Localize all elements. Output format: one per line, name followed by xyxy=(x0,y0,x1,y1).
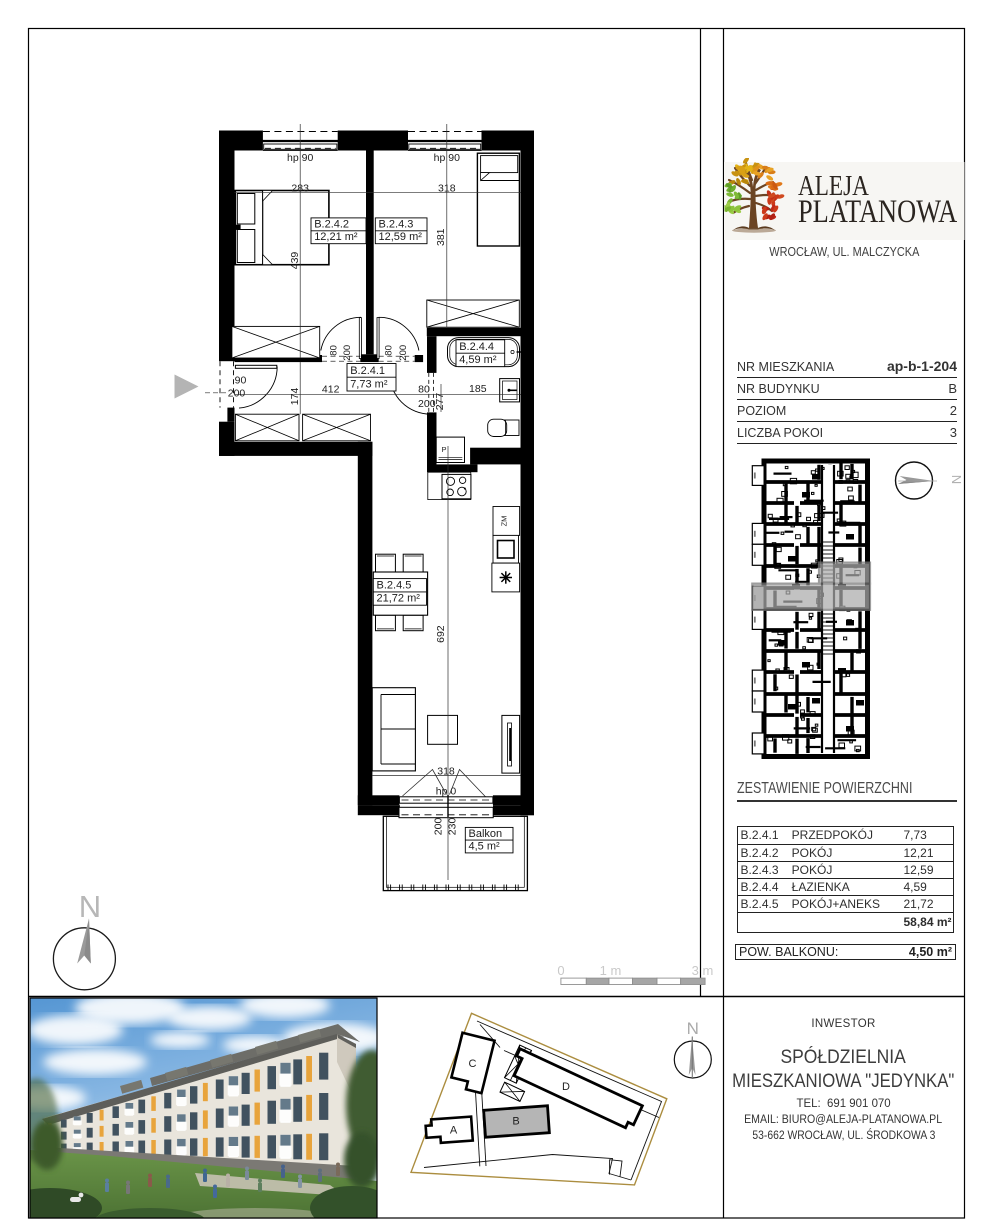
svg-text:3 m: 3 m xyxy=(692,963,714,978)
svg-text:200: 200 xyxy=(342,345,353,361)
svg-text:692: 692 xyxy=(435,625,447,643)
svg-text:230: 230 xyxy=(447,818,459,836)
svg-text:C: C xyxy=(469,1058,477,1070)
svg-text:318: 318 xyxy=(438,182,456,194)
svg-text:412: 412 xyxy=(322,383,340,395)
svg-text:4,5 m²: 4,5 m² xyxy=(469,840,501,852)
svg-text:Balkon: Balkon xyxy=(469,828,503,840)
svg-text:B: B xyxy=(512,1116,519,1128)
svg-text:318: 318 xyxy=(437,766,455,778)
svg-text:277: 277 xyxy=(434,393,446,411)
svg-text:B.2.4.5: B.2.4.5 xyxy=(377,580,412,592)
svg-text:80: 80 xyxy=(418,384,430,396)
svg-text:1 m: 1 m xyxy=(600,963,622,978)
svg-text:174: 174 xyxy=(289,388,301,406)
svg-text:200: 200 xyxy=(228,388,246,400)
svg-text:B.2.4.2: B.2.4.2 xyxy=(314,219,349,231)
svg-text:0: 0 xyxy=(557,963,564,978)
svg-text:D: D xyxy=(562,1081,570,1093)
svg-text:7,73 m²: 7,73 m² xyxy=(350,378,388,390)
svg-text:200: 200 xyxy=(398,345,409,361)
svg-text:N: N xyxy=(79,889,101,924)
svg-text:90: 90 xyxy=(235,374,247,386)
svg-text:ZM: ZM xyxy=(500,516,509,527)
svg-text:hp 90: hp 90 xyxy=(287,152,313,164)
svg-text:439: 439 xyxy=(289,252,301,270)
svg-text:12,59 m²: 12,59 m² xyxy=(379,231,423,243)
svg-text:80: 80 xyxy=(383,345,394,356)
svg-text:A: A xyxy=(450,1125,458,1137)
svg-text:200: 200 xyxy=(432,818,444,836)
svg-text:hp 90: hp 90 xyxy=(434,152,460,164)
svg-text:B.2.4.3: B.2.4.3 xyxy=(379,219,414,231)
svg-text:185: 185 xyxy=(469,383,487,395)
svg-text:hp 0: hp 0 xyxy=(436,785,457,797)
svg-text:B.2.4.1: B.2.4.1 xyxy=(350,365,385,377)
svg-text:381: 381 xyxy=(435,228,447,246)
svg-text:80: 80 xyxy=(328,345,339,356)
svg-text:N: N xyxy=(949,475,964,484)
svg-text:N: N xyxy=(687,1019,699,1038)
svg-text:B.2.4.4: B.2.4.4 xyxy=(459,341,494,353)
svg-text:283: 283 xyxy=(291,182,309,194)
svg-text:12,21 m²: 12,21 m² xyxy=(314,231,358,243)
svg-text:21,72 m²: 21,72 m² xyxy=(377,593,421,605)
svg-text:4,59 m²: 4,59 m² xyxy=(459,354,497,366)
svg-text:P: P xyxy=(442,445,447,454)
